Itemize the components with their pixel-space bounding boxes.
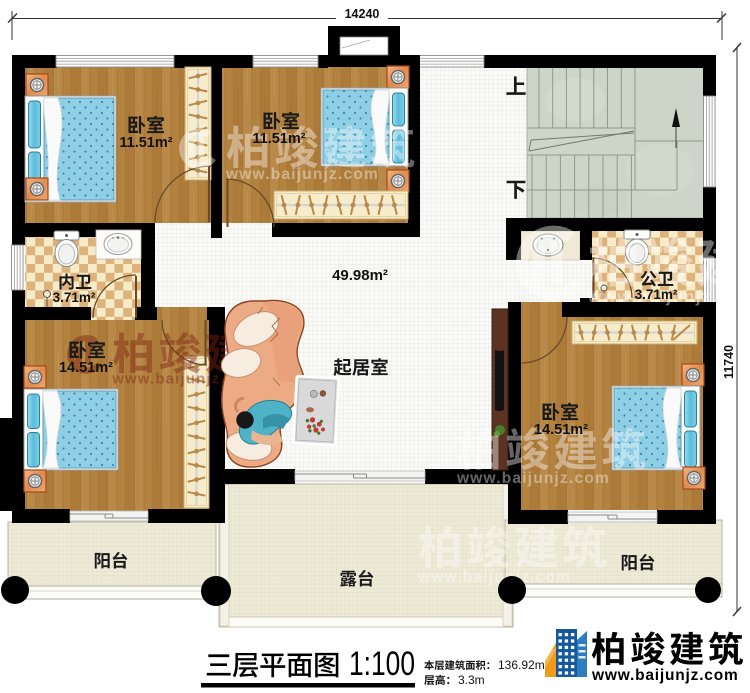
svg-text:3.3m: 3.3m bbox=[458, 673, 485, 687]
svg-text:www.baijunjz.com: www.baijunjz.com bbox=[456, 470, 610, 487]
svg-text:14.51m²: 14.51m² bbox=[59, 360, 113, 376]
svg-text:14.51m²: 14.51m² bbox=[534, 422, 588, 438]
svg-text:11.51m²: 11.51m² bbox=[252, 131, 305, 147]
svg-text:3.71m²: 3.71m² bbox=[53, 290, 96, 305]
svg-text:www.baijunjz.com: www.baijunjz.com bbox=[225, 166, 379, 183]
svg-text:49.98m²: 49.98m² bbox=[332, 267, 388, 284]
svg-text:11740: 11740 bbox=[722, 345, 736, 379]
svg-text:3.71m²: 3.71m² bbox=[635, 287, 678, 302]
svg-text:136.92m²: 136.92m² bbox=[498, 658, 549, 672]
svg-text:1:100: 1:100 bbox=[349, 645, 415, 683]
svg-text:14240: 14240 bbox=[345, 7, 380, 21]
svg-text:www.baijunjz.com: www.baijunjz.com bbox=[417, 569, 571, 586]
svg-text:11.51m²: 11.51m² bbox=[119, 135, 172, 151]
svg-text:www.baijunjz.com: www.baijunjz.com bbox=[591, 667, 739, 684]
